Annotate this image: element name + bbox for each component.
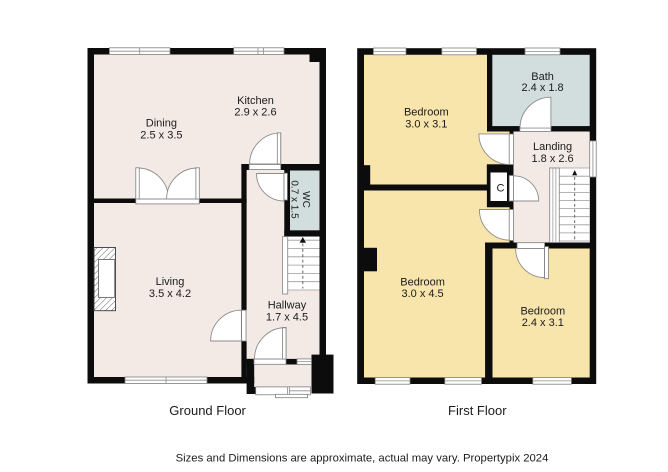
svg-text:2.5 x 3.5: 2.5 x 3.5 [140, 129, 182, 141]
svg-text:Dining: Dining [146, 118, 177, 130]
svg-text:First Floor: First Floor [448, 403, 507, 418]
svg-text:2.9 x 2.6: 2.9 x 2.6 [234, 107, 276, 119]
svg-text:1.8 x 2.6: 1.8 x 2.6 [531, 153, 573, 165]
svg-text:1.7 x 4.5: 1.7 x 4.5 [266, 312, 308, 324]
svg-text:Bedroom: Bedroom [520, 306, 565, 318]
svg-text:C: C [497, 183, 505, 195]
svg-text:2.4 x 3.1: 2.4 x 3.1 [522, 317, 564, 329]
svg-text:Sizes and Dimensions are appro: Sizes and Dimensions are approximate, ac… [176, 452, 549, 464]
svg-text:3.5 x 4.2: 3.5 x 4.2 [149, 288, 191, 300]
svg-text:3.0 x 4.5: 3.0 x 4.5 [401, 288, 443, 300]
svg-text:Bedroom: Bedroom [400, 276, 445, 288]
svg-text:Landing: Landing [533, 141, 572, 153]
svg-text:Bedroom: Bedroom [404, 106, 449, 118]
svg-text:Living: Living [156, 276, 185, 288]
svg-text:3.0 x 3.1: 3.0 x 3.1 [405, 118, 447, 130]
svg-text:2.4 x 1.8: 2.4 x 1.8 [521, 82, 563, 94]
svg-text:Kitchen: Kitchen [237, 95, 274, 107]
svg-text:Hallway: Hallway [268, 300, 307, 312]
svg-text:Ground Floor: Ground Floor [169, 403, 246, 418]
